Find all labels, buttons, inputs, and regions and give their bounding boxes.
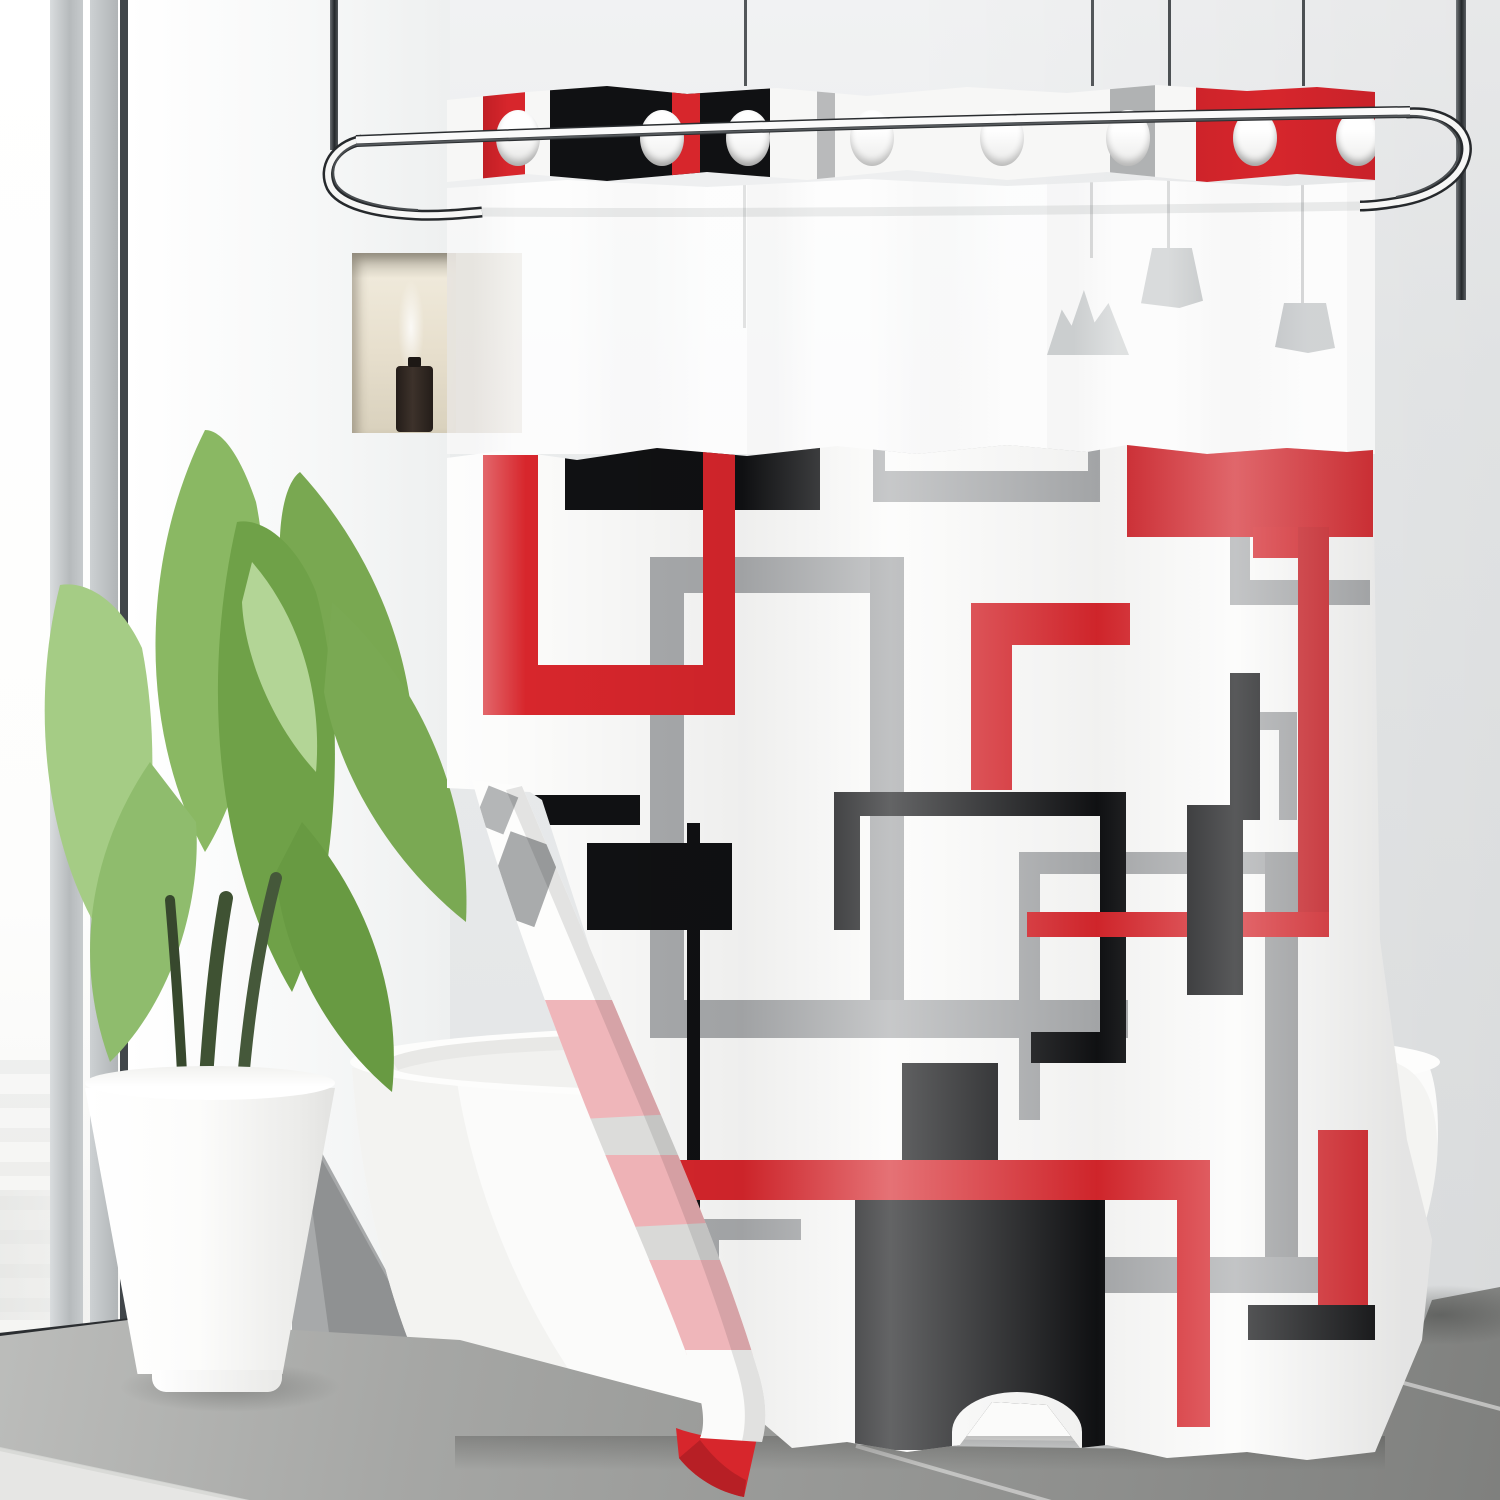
rod-main bbox=[356, 111, 1410, 145]
rod-left-loop bbox=[328, 140, 482, 215]
bathroom-scene bbox=[0, 0, 1500, 1500]
curved-shower-rod bbox=[0, 0, 1500, 1500]
rod-right-loop bbox=[1360, 113, 1466, 206]
